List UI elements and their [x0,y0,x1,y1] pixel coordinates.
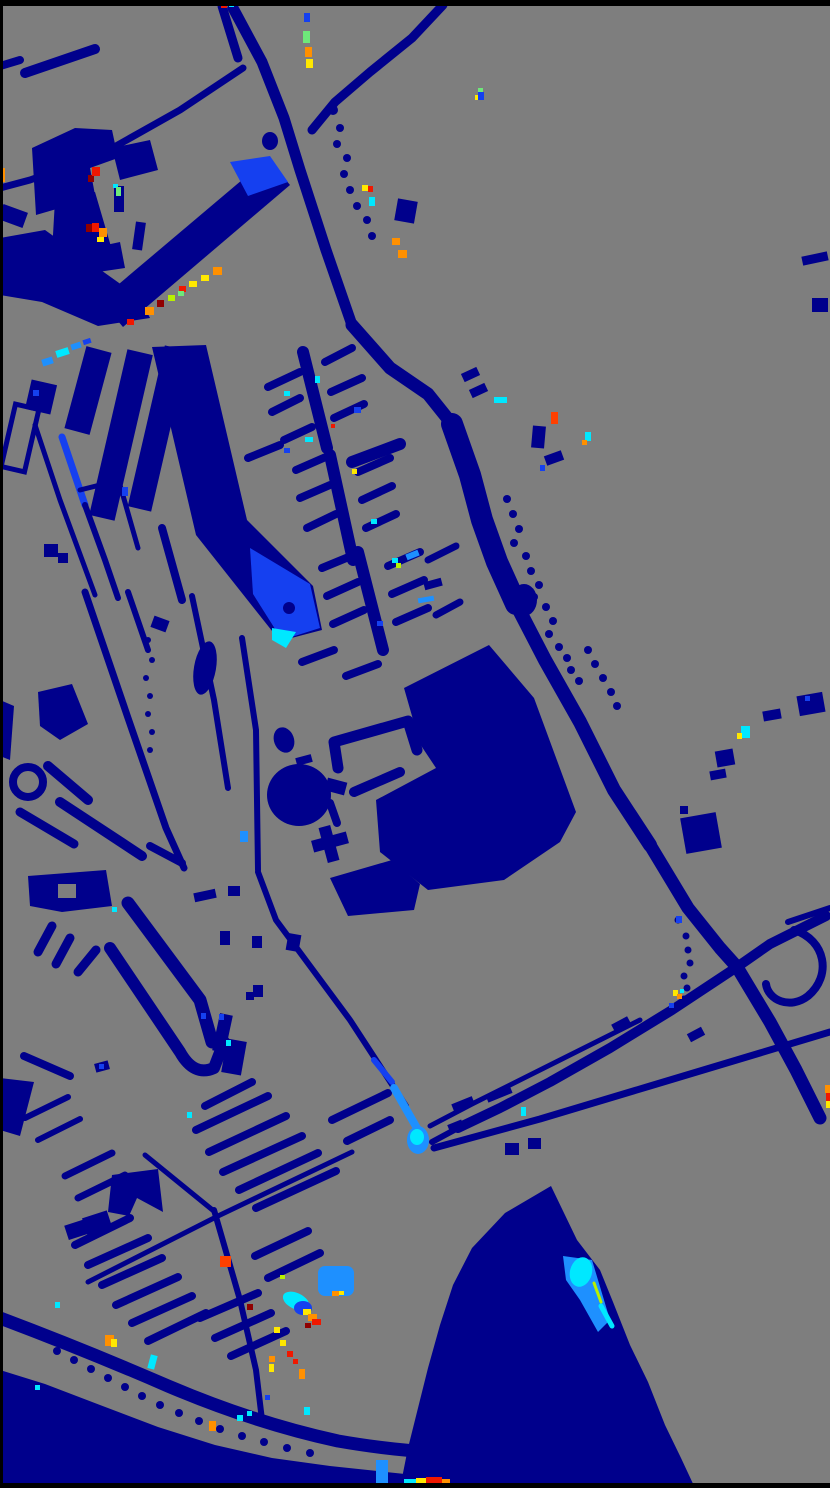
anomaly-rorange [551,412,558,424]
anomaly-orange [825,1085,830,1093]
courtyard [58,884,76,898]
tree-dot [368,232,376,240]
tree-dot [591,660,599,668]
anomaly-orange [582,440,587,445]
anomaly-yellow [352,469,357,474]
anomaly-orange [398,250,407,258]
mooring-dot [138,1392,146,1400]
anomaly-cyan [410,1129,424,1145]
anomaly-yellow [826,1101,830,1108]
anomaly-yellow [737,733,742,739]
building [228,886,240,896]
anomaly-cyan [521,1107,526,1116]
mooring-dot [104,1374,112,1382]
dark-dot [283,602,295,614]
anomaly-blue [201,1013,206,1019]
anomaly-blue [99,1064,104,1069]
anomaly-blue [478,92,484,100]
anomaly-yellow [97,237,104,242]
anomaly-blue [219,1014,224,1020]
anomaly-yellow [306,59,313,68]
tree-dot [147,693,153,699]
anomaly-ygreen [168,295,175,301]
building [252,936,262,948]
anomaly-dred [157,300,164,307]
tree-clump [715,749,736,768]
tree-dot [333,140,341,148]
tree-dot [145,711,151,717]
anomaly-green [178,291,184,296]
anomaly-blue [284,448,290,453]
mooring-dot [70,1356,78,1364]
tree-dot [149,657,155,663]
tree-dot [549,617,557,625]
anomaly-orange [332,1291,339,1296]
anomaly-yellow [269,1364,274,1372]
anomaly-cyan [304,1407,310,1415]
anomaly-cyan [247,1411,252,1416]
mooring-dot [283,1444,291,1452]
anomaly-orange [305,47,312,57]
anomaly-rorange [220,1256,231,1267]
anomaly-cyan [284,391,290,396]
detection-map-svg [0,0,830,1488]
mooring-dot [238,1432,246,1440]
anomaly-dred [86,224,92,232]
tree-dot [575,677,583,685]
anomaly-blue [265,1395,270,1400]
anomaly-cyan [585,432,591,441]
tree-dot [363,216,371,224]
anomaly-orange [145,307,154,315]
tree-dot [515,525,523,533]
building [246,992,254,1000]
anomaly-red [826,1093,830,1101]
anomaly-red [92,167,100,176]
mooring-dot [260,1438,268,1446]
tree-dot [510,539,518,547]
tree-dot [149,729,155,735]
anomaly-blue [540,465,545,471]
anomaly-blue [33,390,39,396]
tree-dot [353,202,361,210]
tree-dot [527,567,535,575]
building [44,544,58,557]
anomaly-yellow [274,1327,280,1333]
tree-dot [681,973,688,980]
anomaly-blue [676,916,682,923]
mooring-dot [175,1409,183,1417]
anomaly-red [312,1319,321,1325]
anomaly-dred [88,175,94,182]
anomaly-cyan [369,197,375,206]
tree-dot [340,170,348,178]
anomaly-blue [669,1003,674,1008]
tree-dot [503,495,511,503]
anomaly-yellow [280,1340,286,1346]
tree-dot [567,666,575,674]
building [220,931,230,945]
detection-map [0,0,830,1488]
anomaly-cyan [315,376,320,383]
border-top [0,0,830,6]
anomaly-dred [247,1304,253,1310]
anomaly-cyan [741,726,750,738]
anomaly-orange [677,994,682,999]
mooring-dot [53,1347,61,1355]
mooring-dot [216,1425,224,1433]
round-building [267,764,331,826]
tree-dot [607,688,615,696]
anomaly-yellow [201,275,209,281]
anomaly-red [287,1351,293,1357]
tree-dot [684,985,691,992]
tree-dot [599,674,607,682]
tree-dot [613,702,621,710]
mooring-dot [121,1383,129,1391]
round-feature [262,132,278,150]
tree-dot [563,654,571,662]
building [531,425,546,448]
tree-dot [683,933,690,940]
anomaly-orange [209,1421,216,1431]
anomaly-lblue [240,831,248,842]
anomaly-ygreen [280,1275,285,1279]
anomaly-orange [269,1356,275,1362]
anomaly-cyan [305,437,313,442]
road-bulge [511,584,537,616]
anomaly-red [293,1359,298,1364]
anomaly-cyan [494,397,507,403]
tree-dot [687,960,694,967]
anomaly-cyan [237,1415,243,1421]
tree-dot [143,675,149,681]
tree-clump [394,198,418,223]
anomaly-orange [299,1369,305,1379]
anomaly-red [127,319,134,325]
anomaly-orange [99,228,107,237]
anomaly-dred [305,1323,311,1328]
anomaly-blue [805,696,810,701]
anomaly-cyan [55,1302,60,1308]
building [253,985,263,997]
border-bottom [0,1483,830,1488]
tree-dot [685,947,692,954]
anomaly-blue [377,621,383,626]
tree-clump [812,298,828,312]
anomaly-cyan [371,519,377,524]
anomaly-yellow [362,185,368,191]
anomaly-blue [122,487,128,496]
anomaly-cyan [112,907,117,912]
tree-dot [545,630,553,638]
tree-clump [680,812,722,854]
tree-dot [343,154,351,162]
anomaly-red [368,186,373,192]
tree-dot [147,747,153,753]
anomaly-yellow [111,1339,117,1347]
anomaly-yellow [339,1291,344,1295]
mooring-dot [156,1401,164,1409]
mooring-dot [306,1449,314,1457]
anomaly-orange [213,267,222,275]
tree-dot [535,581,543,589]
anomaly-yellow [189,281,197,287]
mooring-dot [195,1417,203,1425]
building [528,1138,541,1149]
tree-dot [509,510,517,518]
anomaly-blue [354,407,361,413]
tree-dot [522,552,530,560]
anomaly-ygreen [396,563,401,568]
mooring-dot [87,1365,95,1373]
anomaly-cyan [392,558,398,563]
tree-dot [346,186,354,194]
tree-clump [680,806,688,814]
tree-dot [584,646,592,654]
anomaly-cyan [187,1112,192,1118]
tree-dot [336,124,344,132]
anomaly-cyan [35,1385,40,1390]
anomaly-blue [304,13,310,22]
tree-dot [542,603,550,611]
border-left [0,0,3,1488]
building [58,553,68,563]
anomaly-green [116,187,121,196]
anomaly-red [331,424,335,428]
tree-dot [145,637,151,643]
building [505,1143,519,1155]
anomaly-orange [392,238,400,245]
tree-dot [555,643,563,651]
anomaly-green [303,31,310,43]
anomaly-red [92,223,99,232]
anomaly-cyan [680,989,684,993]
anomaly-cyan [226,1040,231,1046]
